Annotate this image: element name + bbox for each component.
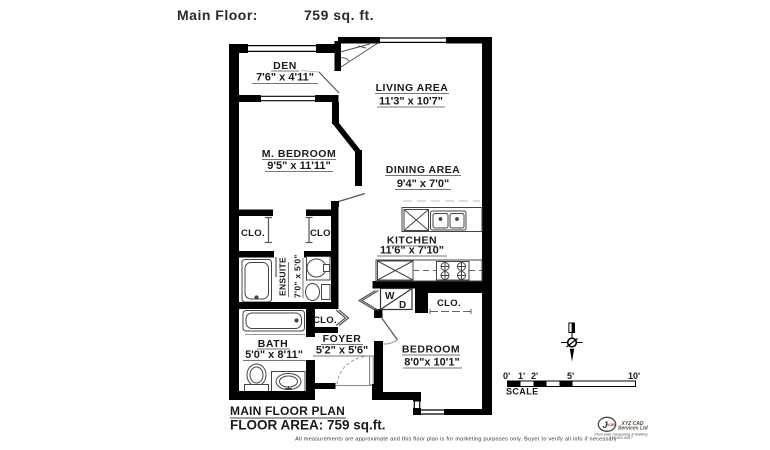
svg-text:W: W	[385, 291, 395, 302]
svg-text:LIVING AREA: LIVING AREA	[376, 82, 449, 94]
svg-text:D: D	[399, 300, 406, 311]
svg-text:ENSUITE: ENSUITE	[278, 257, 288, 296]
svg-text:CLO.: CLO.	[310, 228, 334, 239]
svg-text:7'0" x 5'0": 7'0" x 5'0"	[293, 254, 303, 298]
svg-text:9'5" x 11'11": 9'5" x 11'11"	[267, 160, 330, 172]
svg-text:MAIN FLOOR PLAN: MAIN FLOOR PLAN	[230, 404, 345, 418]
svg-text:11'3" x 10'7": 11'3" x 10'7"	[379, 96, 443, 108]
svg-text:0': 0'	[503, 371, 510, 381]
svg-text:778 322-8917: 778 322-8917	[609, 436, 633, 440]
svg-text:7'6" x 4'11": 7'6" x 4'11"	[256, 72, 314, 84]
svg-text:10': 10'	[628, 371, 640, 381]
svg-text:CLO.: CLO.	[313, 315, 337, 326]
svg-text:2': 2'	[531, 371, 538, 381]
svg-text:MJB: MJB	[607, 422, 616, 427]
svg-text:All measurements are approxima: All measurements are approximate and thi…	[295, 437, 617, 443]
svg-text:BEDROOM: BEDROOM	[402, 344, 460, 356]
svg-text:5': 5'	[567, 371, 574, 381]
svg-text:1': 1'	[518, 371, 525, 381]
svg-text:Services Ltd: Services Ltd	[618, 425, 649, 431]
svg-text:759 sq. ft.: 759 sq. ft.	[304, 7, 374, 23]
svg-text:FOYER: FOYER	[323, 333, 362, 345]
svg-text:8'0"x 10'1": 8'0"x 10'1"	[404, 357, 459, 369]
svg-text:DEN: DEN	[273, 60, 297, 72]
svg-text:Main Floor:: Main Floor:	[177, 7, 258, 23]
svg-text:M. BEDROOM: M. BEDROOM	[262, 148, 336, 160]
svg-text:DINING AREA: DINING AREA	[386, 164, 461, 176]
svg-text:CLO.: CLO.	[241, 228, 265, 239]
svg-text:9'4" x 7'0": 9'4" x 7'0"	[397, 178, 449, 190]
svg-text:FLOOR AREA: 759 sq.ft.: FLOOR AREA: 759 sq.ft.	[230, 418, 386, 433]
svg-text:CLO.: CLO.	[437, 298, 461, 309]
svg-text:5'2" x 5'6": 5'2" x 5'6"	[316, 345, 368, 357]
svg-text:SCALE: SCALE	[506, 387, 539, 397]
svg-text:5'0" x 8'11": 5'0" x 8'11"	[245, 349, 303, 361]
